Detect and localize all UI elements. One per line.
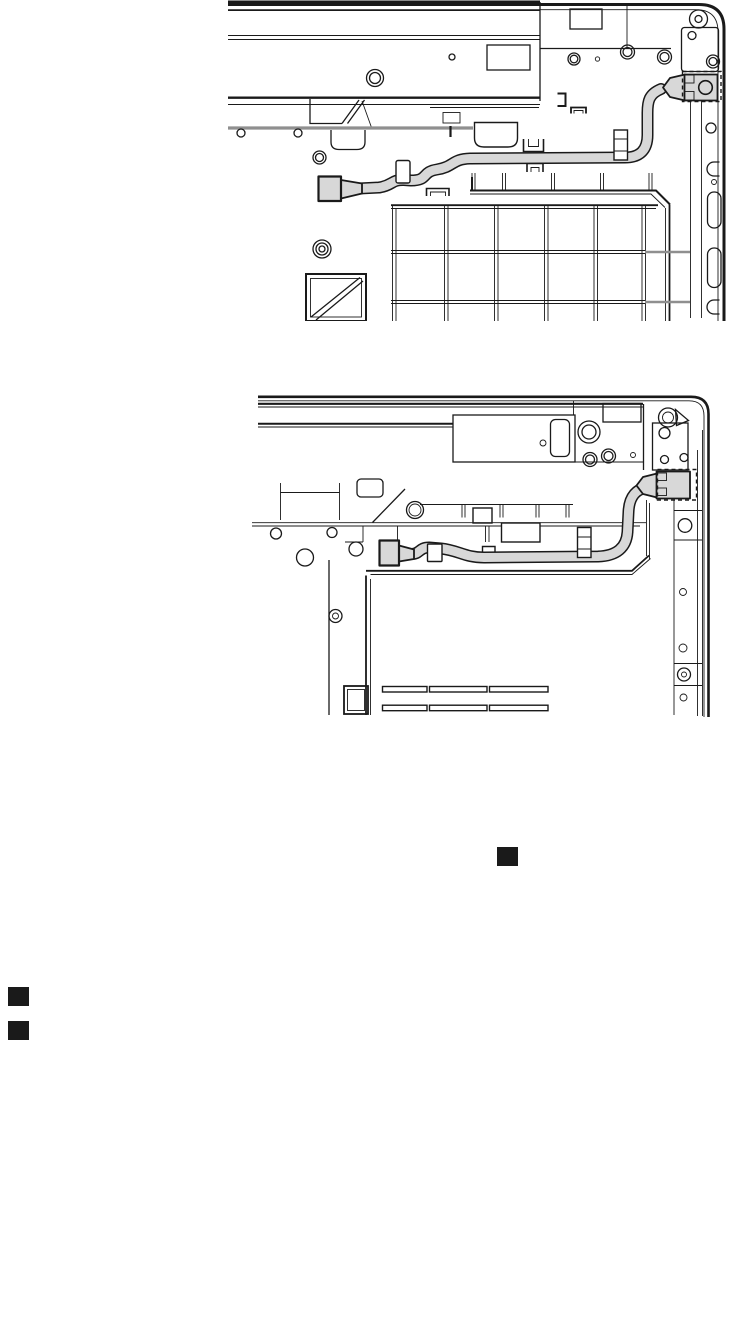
hatched-box xyxy=(306,274,366,321)
cable-plug xyxy=(319,177,342,202)
cable-neck xyxy=(399,546,414,562)
boards-and-modules xyxy=(453,404,689,471)
cable-plug xyxy=(380,541,400,566)
manual-page xyxy=(0,0,731,1338)
cable-neck xyxy=(341,180,362,199)
screw-holes xyxy=(237,10,708,258)
dc-in-jack xyxy=(663,72,721,102)
list-callout-square-1 xyxy=(8,987,29,1006)
list-callout-square-2 xyxy=(8,1021,29,1040)
dc-in-jack-bottom xyxy=(637,470,697,501)
cable-retainer xyxy=(483,547,496,553)
right-edge-strip xyxy=(691,100,722,318)
inner-bay xyxy=(329,556,651,716)
figure-cable-routing-top xyxy=(228,0,731,321)
cable-guide xyxy=(614,130,628,160)
ferrite-clip xyxy=(396,161,410,184)
battery-bay-grid xyxy=(391,173,690,321)
ferrite-clip xyxy=(428,544,443,562)
inline-callout-square xyxy=(497,847,518,866)
figure-cable-routing-bottom xyxy=(252,393,731,718)
hinge-bracket xyxy=(682,28,720,72)
cable-guide xyxy=(578,528,592,558)
